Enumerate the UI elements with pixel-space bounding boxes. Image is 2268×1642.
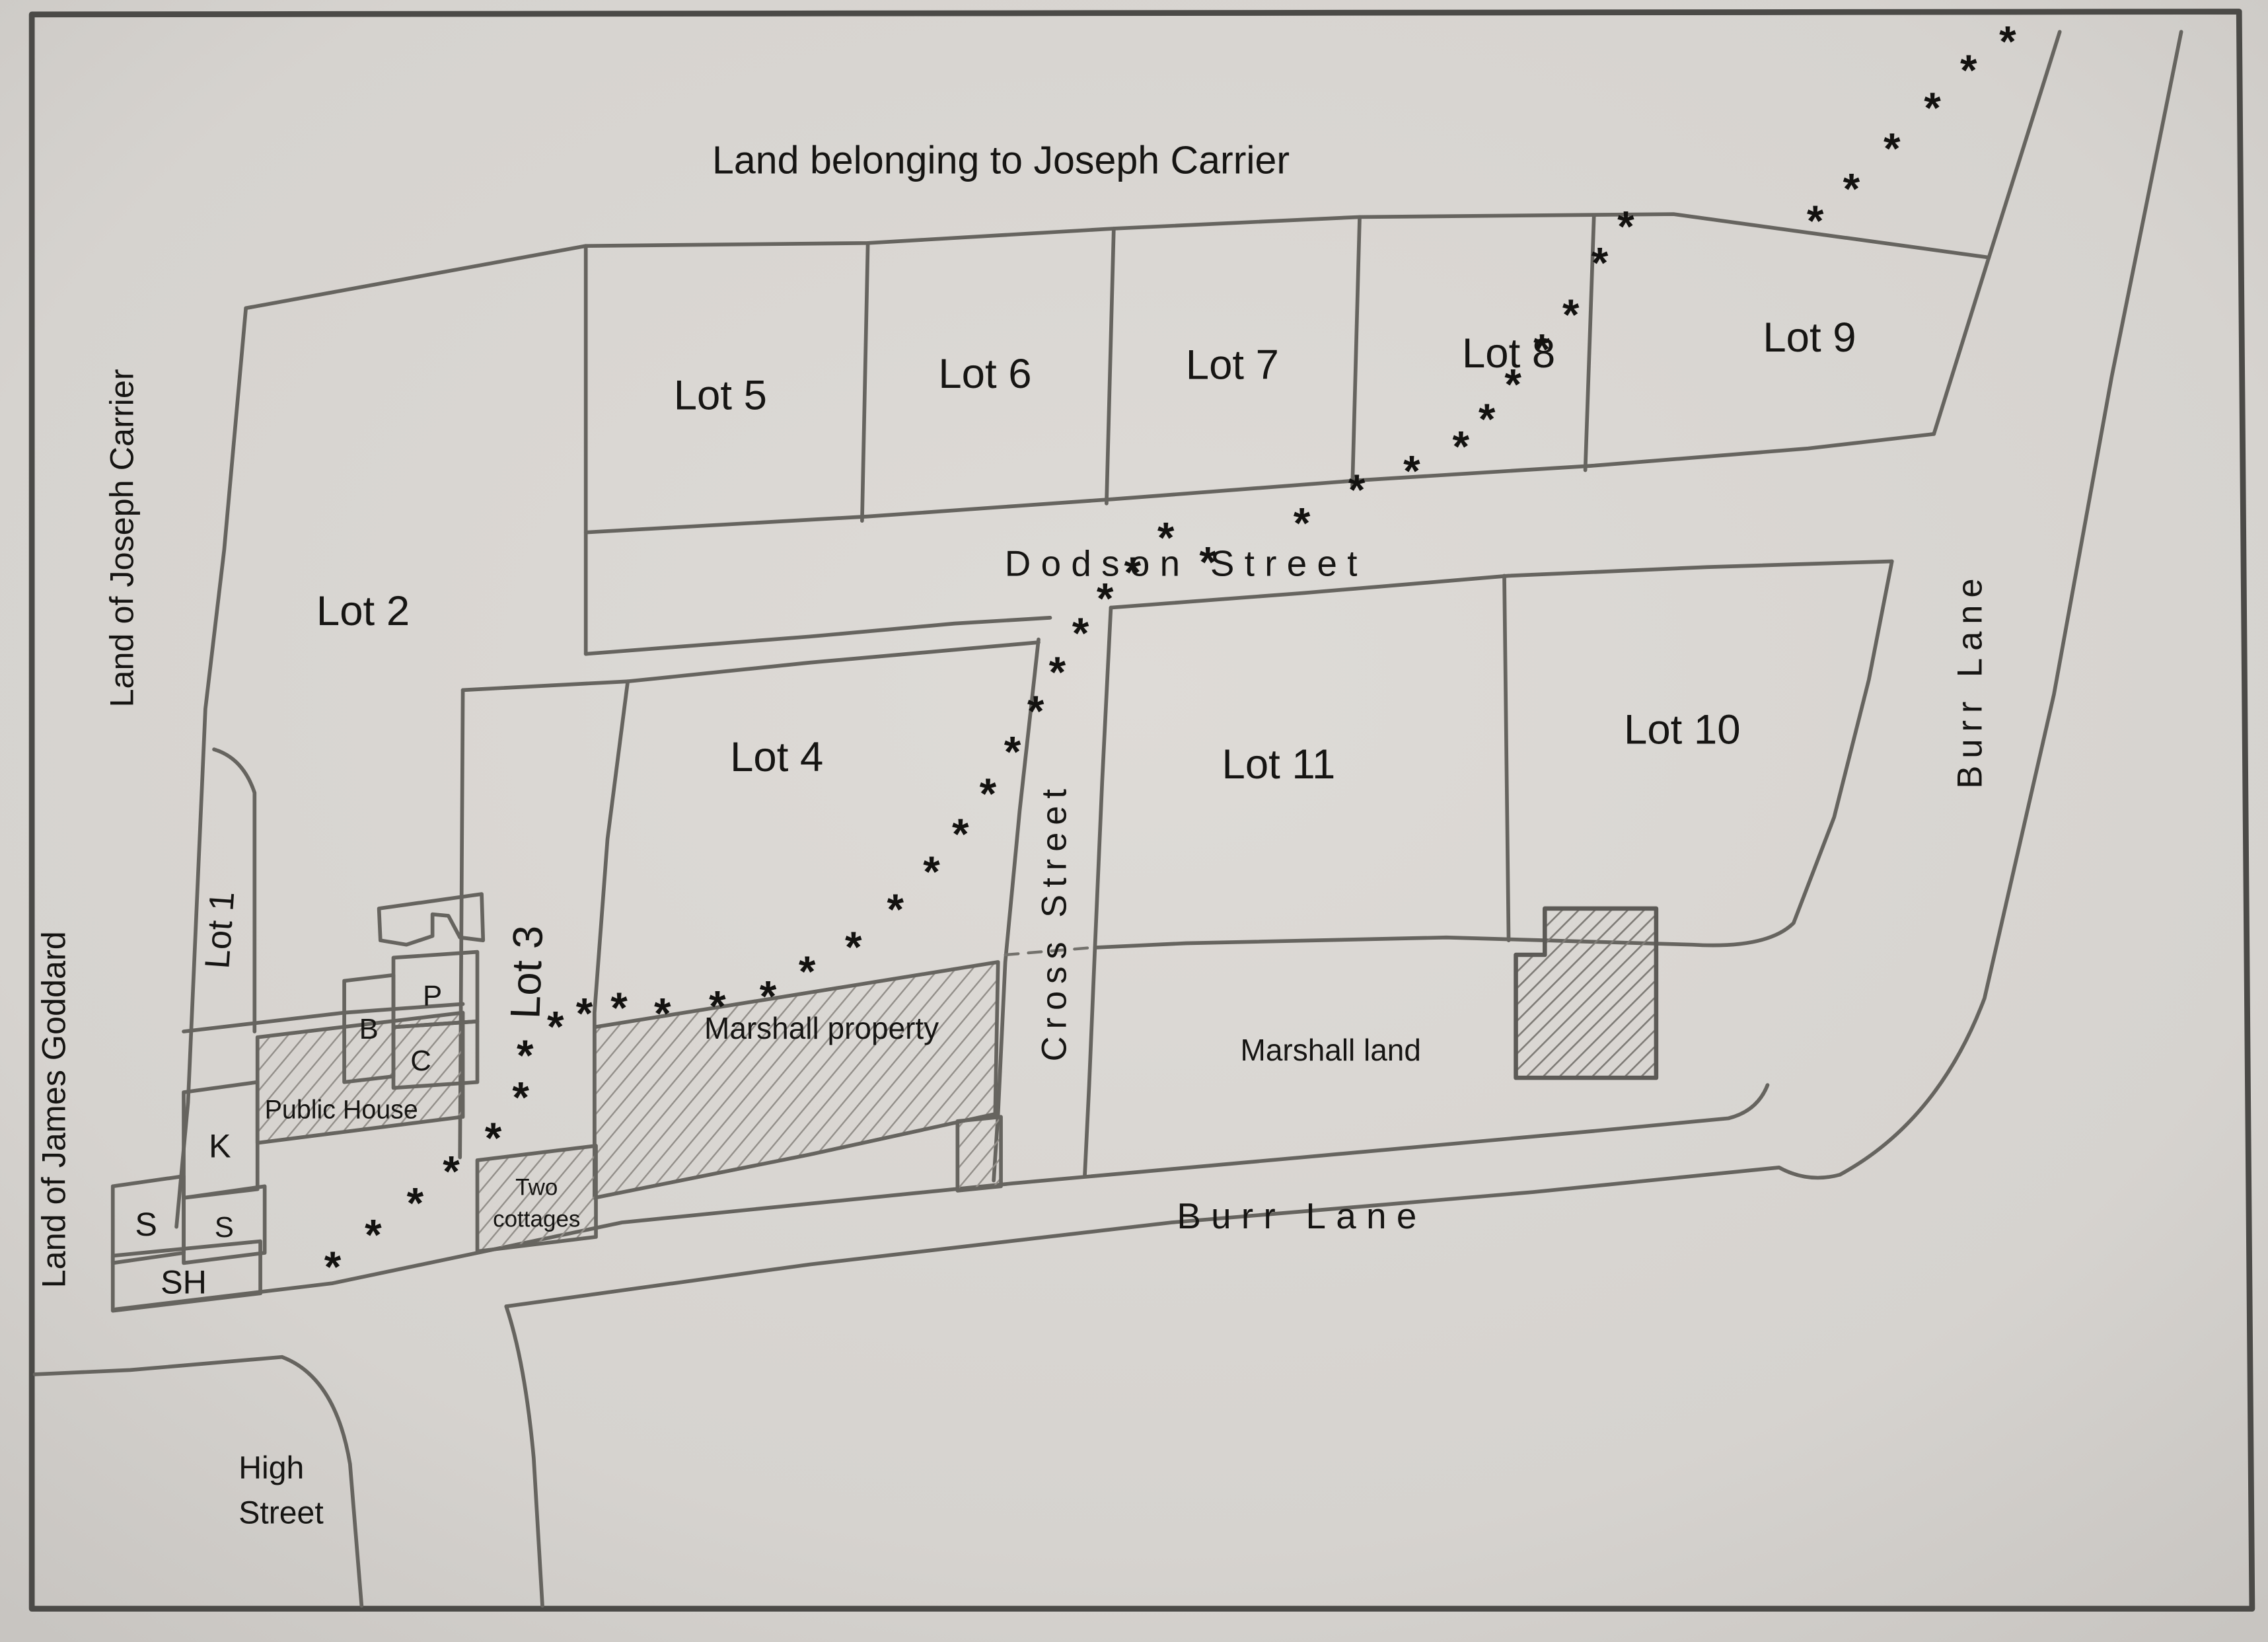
trail-asterisk: * [1562,291,1580,339]
trail-asterisk: * [1157,513,1175,562]
trail-asterisk: * [1960,46,1977,94]
trail-asterisk: * [709,983,726,1031]
trail-asterisk: * [610,984,628,1032]
label-lot2: Lot 2 [316,588,410,634]
label-lot4: Lot 4 [730,734,823,780]
trail-asterisk: * [980,770,997,818]
trail-asterisk: * [1097,574,1114,622]
label-b: B [359,1013,379,1045]
trail-asterisk: * [485,1114,502,1162]
label-lot10: Lot 10 [1624,706,1741,753]
trail-asterisk: * [512,1074,529,1122]
trail-asterisk: * [547,1002,564,1051]
label-burr-lane-bottom: Burr Lane [1177,1195,1426,1236]
trail-asterisk: * [1199,539,1216,587]
trail-asterisk: * [923,848,940,896]
trail-asterisk: * [1999,17,2016,65]
trail-asterisk: * [760,972,777,1020]
label-lot5: Lot 5 [674,373,767,419]
label-sh: SH [161,1263,207,1300]
label-lot9: Lot 9 [1763,315,1856,361]
label-burr-lane-vertical: Burr Lane [1951,571,1990,788]
trail-asterisk: * [1884,124,1901,172]
trail-asterisk: * [654,990,671,1038]
label-lot1: Lot 1 [198,890,242,970]
plat-map: Land belonging to Joseph Carrier Land of… [0,0,2268,1642]
trail-asterisk: * [1453,422,1470,470]
trail-asterisk: * [1807,197,1824,245]
trail-asterisk: * [887,885,904,934]
cross-street-small-building [957,1117,1001,1191]
map-title: Land belonging to Joseph Carrier [712,138,1290,182]
trail-asterisk: * [1504,360,1521,408]
label-p: P [423,980,442,1012]
trail-asterisk: * [952,810,969,858]
label-c: C [410,1045,431,1077]
label-public-house: Public House [265,1095,418,1124]
trail-asterisk: * [1004,728,1021,776]
label-cross-street: Cross Street [1035,782,1074,1061]
label-k: K [209,1127,231,1165]
trail-asterisk: * [324,1243,342,1291]
trail-asterisk: * [1049,648,1066,696]
label-dodson-street: Dodson Street [1005,542,1368,583]
label-marshall-property: Marshall property [704,1011,939,1045]
label-lot6: Lot 6 [938,351,1031,397]
paper-background [0,0,2268,1642]
label-s-inner: S [215,1211,234,1244]
trail-asterisk: * [1027,687,1044,735]
label-s-left: S [135,1205,157,1243]
label-lot7: Lot 7 [1186,342,1279,389]
trail-asterisk: * [517,1031,534,1080]
trail-asterisk: * [1348,466,1366,514]
label-lot11: Lot 11 [1222,741,1336,788]
trail-asterisk: * [576,990,593,1038]
trail-asterisk: * [1072,609,1089,657]
trail-asterisk: * [1479,395,1496,443]
label-land-of-james-goddard: Land of James Goddard [35,931,73,1288]
trail-asterisk: * [1124,548,1142,597]
trail-asterisk: * [1403,447,1420,496]
trail-asterisk: * [443,1147,460,1195]
trail-asterisk: * [1617,203,1634,251]
trail-asterisk: * [1924,84,1941,132]
label-marshall-land: Marshall land [1241,1033,1421,1067]
trail-asterisk: * [1533,326,1551,374]
trail-asterisk: * [1843,165,1860,213]
label-lot3: Lot 3 [502,924,552,1020]
trail-asterisk: * [1294,499,1311,547]
trail-asterisk: * [799,948,816,996]
label-land-of-joseph-carrier: Land of Joseph Carrier [102,369,140,707]
trail-asterisk: * [845,923,862,971]
trail-asterisk: * [365,1211,382,1259]
trail-asterisk: * [407,1179,424,1227]
trail-asterisk: * [1591,239,1609,287]
